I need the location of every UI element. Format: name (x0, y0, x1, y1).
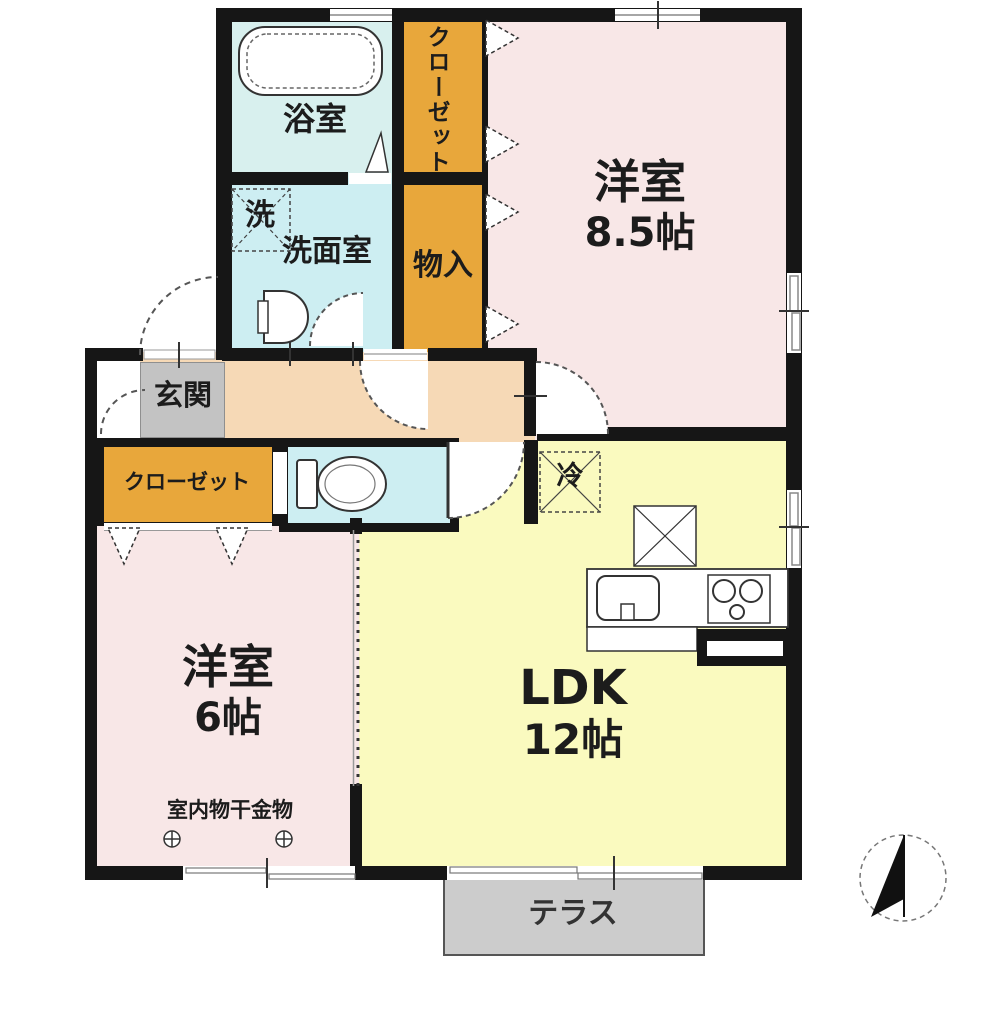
floor-plan: 浴室 洗 洗面室 クローゼット 物入 洋室 8.5帖 玄関 クローゼット 冷 洋… (0, 0, 991, 1024)
bath-door-icon (366, 133, 388, 172)
laundry-note-label: 室内物干金物 (128, 799, 332, 821)
window-icon (186, 858, 355, 888)
folding-door-icon (108, 528, 248, 564)
washbasin-icon (258, 291, 308, 343)
bath-label: 浴室 (255, 103, 375, 137)
window-icon (779, 273, 809, 568)
bedroom-main-door-icon (514, 362, 608, 434)
compass-north-icon (860, 835, 946, 921)
terrace-slider-icon (450, 856, 702, 890)
bedroom-second-name: 洋室 (182, 640, 274, 694)
storage-label: 物入 (398, 250, 488, 282)
ldk-size: 12帖 (523, 715, 623, 764)
bedroom-main-label: 洋室 8.5帖 (520, 158, 760, 255)
terrace-label: テラス (453, 898, 693, 930)
fridge-label: 冷 (549, 463, 591, 491)
laundry-hook-icon (164, 831, 292, 847)
bedroom-main-size: 8.5帖 (585, 210, 696, 256)
closet-side-label: クローゼット (102, 471, 272, 493)
bedroom-second-size: 6帖 (194, 695, 262, 741)
counter-box-icon (634, 506, 696, 566)
window-icon (330, 1, 700, 29)
kitchen-counter-icon (587, 569, 789, 666)
bath-door-gap (349, 173, 391, 184)
sliding-partition-icon (354, 530, 359, 786)
washer-label: 洗 (238, 200, 282, 232)
folding-door-icon (486, 20, 518, 342)
bedroom-main-name: 洋室 (594, 155, 686, 209)
washroom-door-icon (310, 293, 363, 346)
closet-top-label: クローゼット (424, 22, 448, 177)
ldk-door-icon (448, 442, 524, 518)
plan-graphics (0, 0, 991, 1024)
bathtub-icon (239, 27, 382, 95)
ldk-name: LDK (519, 660, 627, 716)
washroom-label: 洗面室 (252, 236, 402, 268)
ldk-label: LDK 12帖 (453, 663, 693, 764)
toilet-icon (297, 457, 386, 511)
bedroom-second-label: 洋室 6帖 (108, 643, 348, 740)
hall-door-icon (290, 342, 428, 429)
entrance-label: 玄関 (134, 380, 232, 410)
